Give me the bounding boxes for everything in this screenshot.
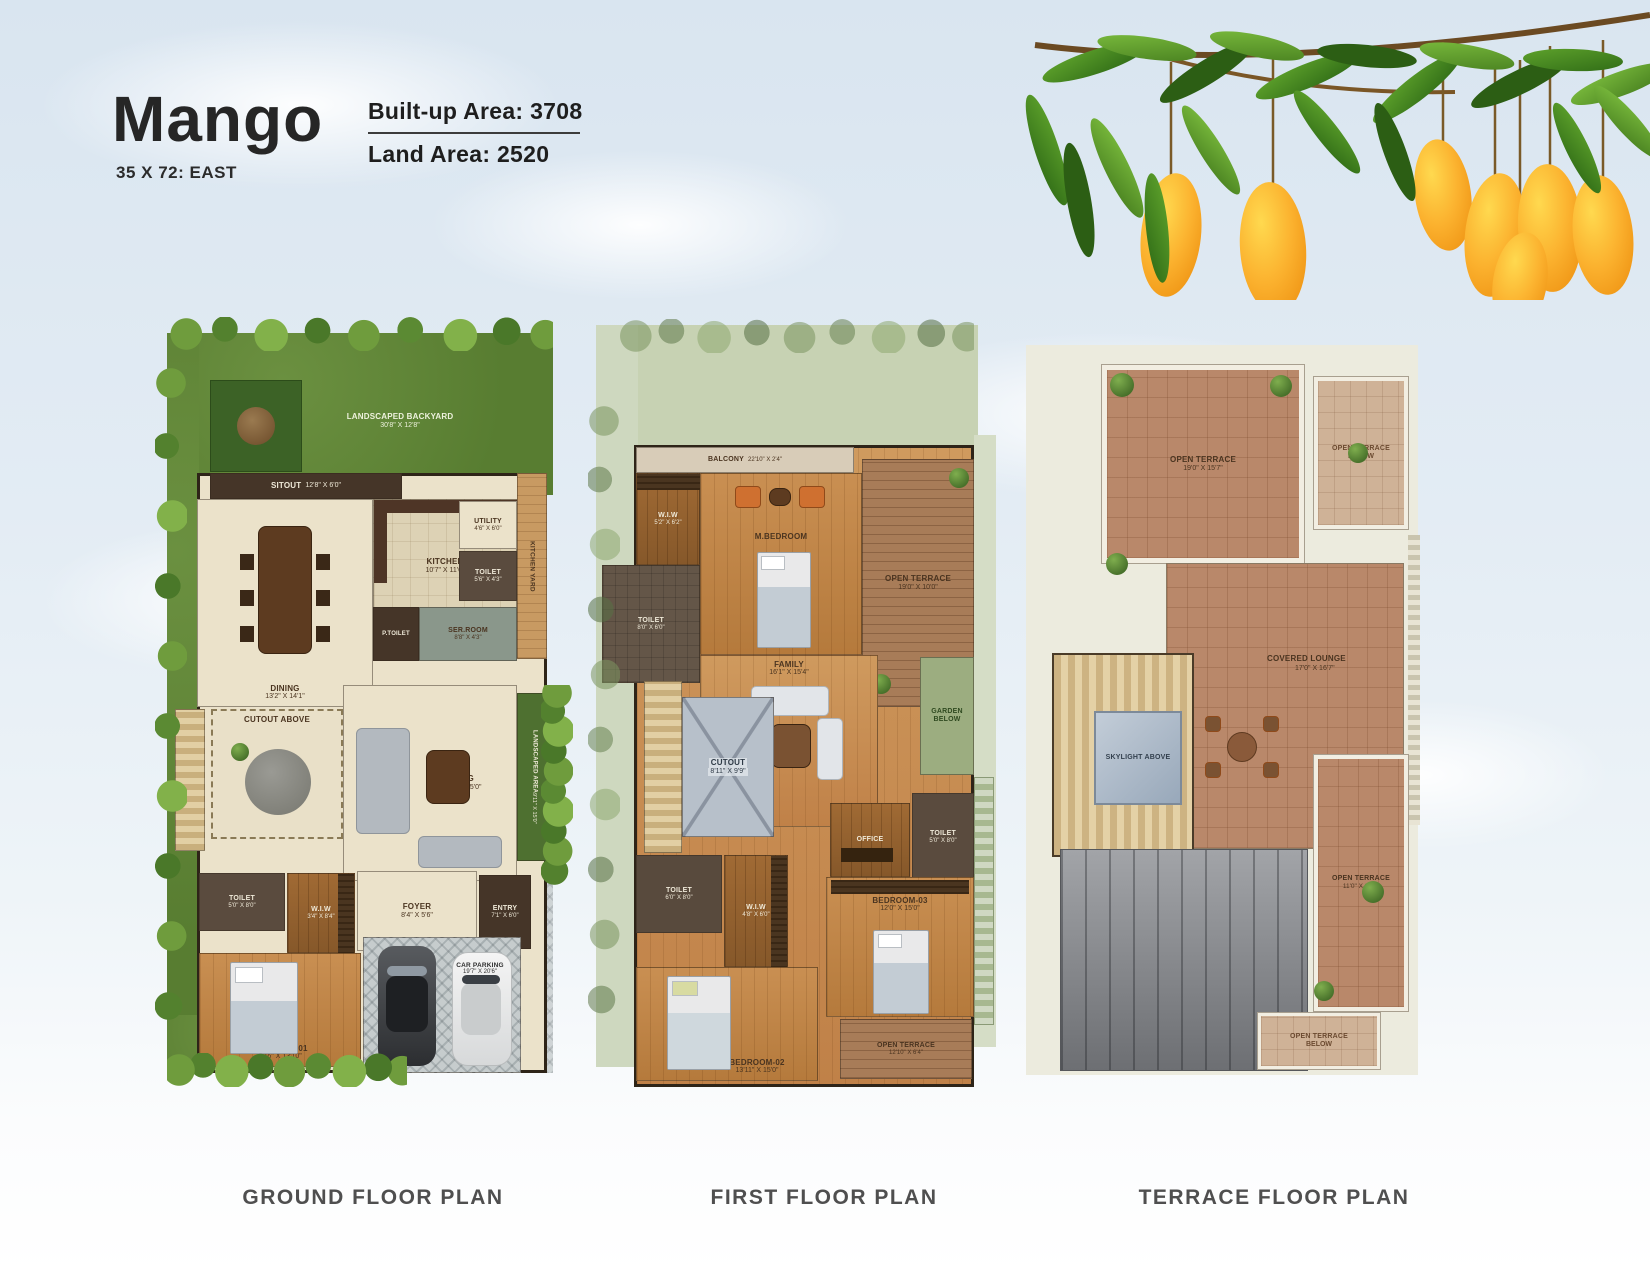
first-floor-plan: BALCONY 22'10" X 2'4" W.I.W 5'2" X 6'2" … — [588, 325, 998, 1090]
terrace-skylight: SKYLIGHT ABOVE — [1094, 711, 1182, 805]
tree-row-bottom — [167, 1053, 407, 1087]
room-label: SER.ROOM — [448, 627, 488, 635]
room-label: BALCONY — [708, 456, 744, 464]
ground-dining: DINING 13'2" X 14'1" — [197, 499, 373, 707]
ground-cutout: CUTOUT ABOVE — [211, 709, 343, 839]
room-dims: 12'10" X 6'4" — [889, 1050, 923, 1057]
room-dims: 12'8" X 6'0" — [305, 482, 341, 490]
lounge-chair-icon — [1263, 716, 1279, 732]
room-label: BEDROOM-03 — [872, 896, 927, 905]
room-label: W.I.W — [658, 512, 678, 520]
room-label: TOILET — [229, 895, 255, 903]
shrub-icon — [1348, 443, 1368, 463]
room-label: TOILET — [475, 569, 501, 577]
dining-table-icon — [258, 526, 312, 654]
sofa-icon — [817, 718, 843, 780]
sofa-icon — [356, 728, 410, 834]
first-toilet-bed02: TOILET 6'0" X 8'0" — [636, 855, 722, 933]
terrace-open-terrace-below-bottom: OPEN TERRACE BELOW — [1258, 1013, 1380, 1069]
stats-divider — [368, 132, 580, 134]
ground-ser-room: SER.ROOM 8'8" X 4'3" — [419, 607, 517, 661]
bed-icon — [873, 930, 929, 1014]
backyard-patio — [210, 380, 302, 472]
room-label: SKYLIGHT ABOVE — [1106, 754, 1171, 762]
first-garden-below: GARDEN BELOW — [920, 657, 974, 775]
shrub-icon — [1362, 881, 1384, 903]
first-bedroom-03: BEDROOM-03 12'0" X 15'0" — [826, 877, 974, 1017]
dining-chairs-icon — [240, 538, 254, 642]
tree-column-left — [588, 395, 620, 1045]
room-label: W.I.W — [311, 906, 331, 914]
room-label: W.I.W — [746, 904, 766, 912]
builtup-area-label: Built-up Area: 3708 — [368, 98, 582, 125]
pergola-strip — [974, 777, 994, 1025]
coffee-table-icon — [771, 724, 811, 768]
terrace-floor-plan: OPEN TERRACE 19'0" X 15'7" OPEN TERRACE … — [1018, 325, 1428, 1090]
first-wiw-master: W.I.W 5'2" X 6'2" — [636, 473, 700, 565]
first-staircase — [644, 681, 682, 853]
side-table-icon — [769, 488, 791, 506]
sofa-icon — [418, 836, 502, 868]
ground-sitout: SITOUT 12'8" X 6'0" — [210, 473, 402, 499]
room-dims: 5'6" X 4'3" — [474, 577, 501, 584]
first-balcony: BALCONY 22'10" X 2'4" — [636, 447, 854, 473]
blanket-icon — [231, 1001, 297, 1053]
room-dims: 7'1" X 6'0" — [491, 913, 518, 920]
bed-icon — [757, 552, 811, 648]
room-label: TOILET — [638, 617, 664, 625]
room-dims: 12'0" X 15'0" — [880, 905, 920, 913]
tree-row-top — [167, 317, 553, 351]
armchair-icon — [799, 486, 825, 508]
room-dims: 30'8" X 12'8" — [380, 422, 420, 430]
blanket-icon — [874, 963, 928, 1013]
room-dims: 3'4" X 8'4" — [307, 914, 334, 921]
room-dims: 19'0" X 10'0" — [898, 584, 938, 592]
lounge-chair-icon — [1205, 716, 1221, 732]
room-dims: 13'11" X 15'0" — [736, 1067, 779, 1075]
room-dims: 17'0" X 16'7" — [1295, 665, 1335, 673]
room-dims: 8'4" X 5'6" — [401, 912, 433, 920]
first-office: OFFICE — [830, 803, 910, 877]
patio-table-icon — [237, 407, 275, 445]
blanket-icon — [668, 1013, 730, 1069]
ground-living: LIVING 25'11" X 15'0" — [343, 685, 517, 881]
terrace-stair-block: SKYLIGHT ABOVE — [1052, 653, 1194, 857]
room-dims: BELOW — [1306, 1041, 1332, 1049]
room-label: TOILET — [930, 830, 956, 838]
first-open-terrace-bottom: OPEN TERRACE 12'10" X 6'4" — [840, 1019, 972, 1079]
room-label: OPEN TERRACE — [877, 1042, 935, 1050]
room-dims: 4'6" X 6'0" — [474, 526, 501, 533]
kitchen-counter-icon — [374, 513, 387, 583]
first-master-bedroom: M.BEDROOM 12'6" X 16'0" — [700, 473, 862, 655]
wardrobe-icon — [831, 880, 969, 894]
room-label: KITCHEN YARD — [528, 541, 535, 592]
pillow-icon — [761, 556, 785, 570]
room-label: UTILITY — [474, 518, 502, 526]
room-label: OPEN TERRACE — [1332, 875, 1390, 883]
car-roof — [461, 983, 501, 1035]
first-wiw-bed02: W.I.W 4'8" X 6'0" — [724, 855, 788, 967]
lounge-table-icon — [1227, 732, 1257, 762]
room-dims: 8'8" X 4'3" — [454, 635, 481, 642]
dining-chairs-icon — [316, 538, 330, 642]
car-icon — [378, 946, 436, 1066]
plot-size-label: 35 X 72: EAST — [116, 163, 237, 183]
bed-icon — [230, 962, 298, 1054]
cloud-decor — [430, 150, 850, 300]
room-label: ENTRY — [493, 905, 517, 913]
room-label: DINING — [270, 684, 299, 693]
pillow-icon — [672, 981, 698, 996]
room-label: CUTOUT — [709, 758, 747, 767]
ground-utility: UTILITY 4'6" X 6'0" — [459, 501, 517, 549]
room-dims: 4'8" X 6'0" — [742, 912, 769, 919]
room-label: OPEN TERRACE — [885, 574, 951, 583]
caption-terrace-floor: TERRACE FLOOR PLAN — [1069, 1186, 1479, 1210]
ground-bedroom-01: BEDROOM-01 12'6" X 13'10" — [199, 953, 361, 1067]
room-label: LANDSCAPED AREA — [531, 730, 538, 793]
room-label: COVERED LOUNGE — [1267, 654, 1346, 663]
room-label: OFFICE — [857, 836, 884, 844]
closet-shelves-icon — [771, 856, 787, 968]
room-dims: 9'11" X 15'0" — [531, 793, 537, 824]
room-dims: 19'0" X 15'7" — [1183, 465, 1223, 473]
room-label: OPEN TERRACE — [1290, 1033, 1348, 1041]
room-label: FAMILY — [774, 660, 804, 669]
ground-toilet-kitchen: TOILET 5'6" X 4'3" — [459, 551, 517, 601]
room-label: LANDSCAPED BACKYARD — [347, 412, 454, 421]
closet-shelves-icon — [338, 874, 354, 954]
room-dims: 5'0" X 8'0" — [929, 838, 956, 845]
mango-branch-illustration — [975, 0, 1650, 300]
room-label: CAR PARKING — [456, 962, 504, 969]
room-label: TOILET — [666, 887, 692, 895]
room-dims: 5'2" X 6'2" — [654, 520, 681, 527]
ground-p-toilet: P.TOILET — [373, 607, 419, 661]
ground-kitchen-yard: KITCHEN YARD — [517, 473, 547, 659]
plant-icon — [231, 743, 249, 761]
shrub-icon — [1106, 553, 1128, 575]
room-dims: 8'11" X 9'9" — [708, 768, 747, 776]
shrub-icon — [949, 468, 969, 488]
brochure-page: Mango 35 X 72: EAST Built-up Area: 3708 … — [0, 0, 1650, 1275]
tree-column-left — [155, 355, 187, 1055]
room-label: BEDROOM-02 — [729, 1058, 784, 1067]
room-label: OPEN TERRACE — [1170, 455, 1236, 464]
tree-column-right — [541, 685, 573, 885]
round-rug-icon — [245, 749, 311, 815]
room-dims: 8'0" X 6'0" — [637, 625, 664, 632]
first-toilet-bed03: TOILET 5'0" X 8'0" — [912, 793, 974, 881]
area-stats: Built-up Area: 3708 Land Area: 2520 — [368, 98, 582, 168]
pillow-icon — [878, 934, 902, 948]
terrace-open-terrace-right: OPEN TERRACE 11'0" X 21'1" — [1314, 755, 1408, 1011]
room-dims: 16'1" X 15'4" — [769, 669, 809, 677]
room-label: GARDEN BELOW — [921, 708, 973, 724]
room-dims: 22'10" X 2'4" — [748, 457, 782, 464]
room-label: P.TOILET — [382, 631, 410, 638]
lounge-chair-icon — [1205, 762, 1221, 778]
car-windshield — [387, 966, 427, 976]
room-dims: 13'2" X 14'1" — [265, 693, 305, 701]
shrub-icon — [1270, 375, 1292, 397]
first-cutout: CUTOUT 8'11" X 9'9" — [682, 697, 774, 837]
room-label: M.BEDROOM — [755, 532, 807, 541]
ground-wiw: W.I.W 3'4" X 8'4" — [287, 873, 355, 953]
tree-row-top — [618, 319, 974, 353]
room-dims: 6'0" X 8'0" — [665, 895, 692, 902]
first-bedroom-02: BEDROOM-02 13'11" X 15'0" — [636, 967, 818, 1081]
room-label: SITOUT — [271, 481, 301, 490]
ground-floor-plan: LANDSCAPED BACKYARD 30'8" X 12'8" SITOUT… — [155, 325, 565, 1090]
caption-first-floor: FIRST FLOOR PLAN — [619, 1186, 1029, 1210]
page-title: Mango — [112, 82, 323, 156]
car-roof — [386, 976, 428, 1032]
lounge-chair-icon — [1263, 762, 1279, 778]
closet-shelves-icon — [637, 474, 701, 490]
room-dims: 5'0" X 8'0" — [228, 903, 255, 910]
room-label: KITCHEN — [427, 557, 464, 566]
room-label: CUTOUT ABOVE — [244, 715, 310, 724]
trellis-strip — [1408, 535, 1420, 825]
room-label: FOYER — [403, 902, 432, 911]
pillow-icon — [235, 967, 263, 983]
caption-ground-floor: GROUND FLOOR PLAN — [168, 1186, 578, 1210]
ground-backyard-label: LANDSCAPED BACKYARD 30'8" X 12'8" — [305, 393, 495, 449]
armchair-icon — [735, 486, 761, 508]
coffee-table-icon — [426, 750, 470, 804]
shrub-icon — [1314, 981, 1334, 1001]
ground-toilet-bedroom: TOILET 5'0" X 8'0" — [199, 873, 285, 931]
bed-icon — [667, 976, 731, 1070]
room-dims: 19'7" X 20'6" — [463, 969, 497, 976]
parking-label: CAR PARKING 19'7" X 20'6" — [442, 954, 518, 984]
desk-icon — [841, 848, 893, 862]
land-area-label: Land Area: 2520 — [368, 141, 582, 168]
shrub-icon — [1110, 373, 1134, 397]
blanket-icon — [758, 587, 810, 647]
